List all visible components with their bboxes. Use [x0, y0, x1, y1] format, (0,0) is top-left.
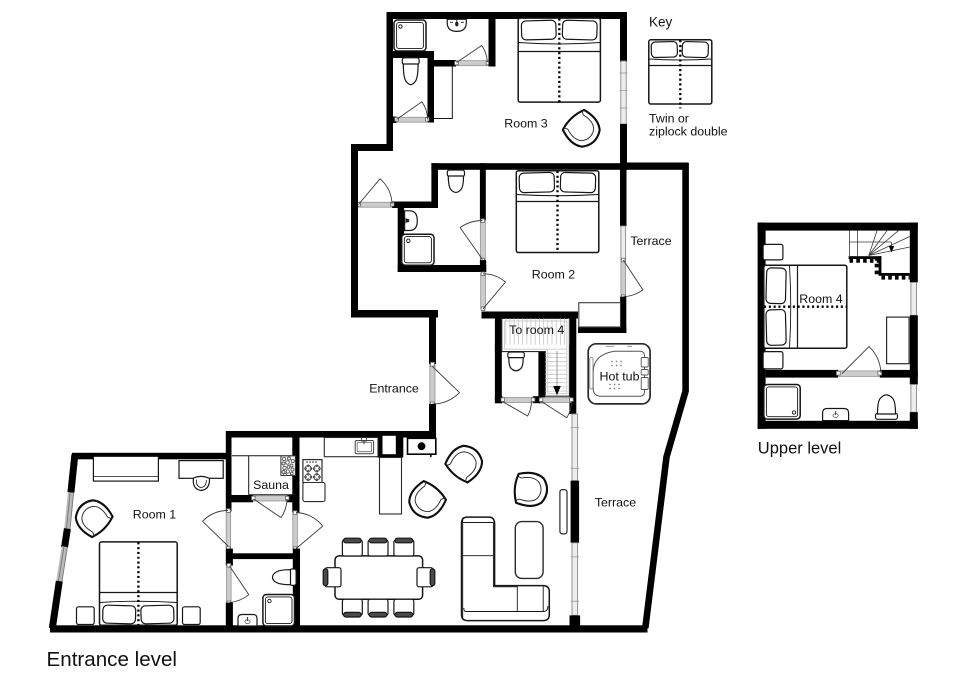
svg-text:Room 2: Room 2 — [532, 268, 575, 282]
svg-text:Entrance level: Entrance level — [47, 648, 178, 671]
svg-text:Room 3: Room 3 — [504, 117, 547, 131]
svg-text:Twin or: Twin or — [649, 111, 689, 125]
svg-text:Upper level: Upper level — [758, 439, 841, 457]
svg-text:Key: Key — [649, 15, 673, 30]
svg-text:ziplock double: ziplock double — [649, 124, 728, 138]
svg-text:Terrace: Terrace — [630, 234, 671, 248]
svg-text:Room 4: Room 4 — [799, 292, 842, 306]
svg-text:To room 4: To room 4 — [509, 323, 564, 337]
svg-text:Room 1: Room 1 — [133, 508, 176, 522]
svg-text:Entrance: Entrance — [369, 382, 419, 396]
svg-text:Hot tub: Hot tub — [600, 369, 640, 383]
svg-text:Terrace: Terrace — [595, 496, 636, 510]
svg-text:Sauna: Sauna — [253, 478, 289, 492]
